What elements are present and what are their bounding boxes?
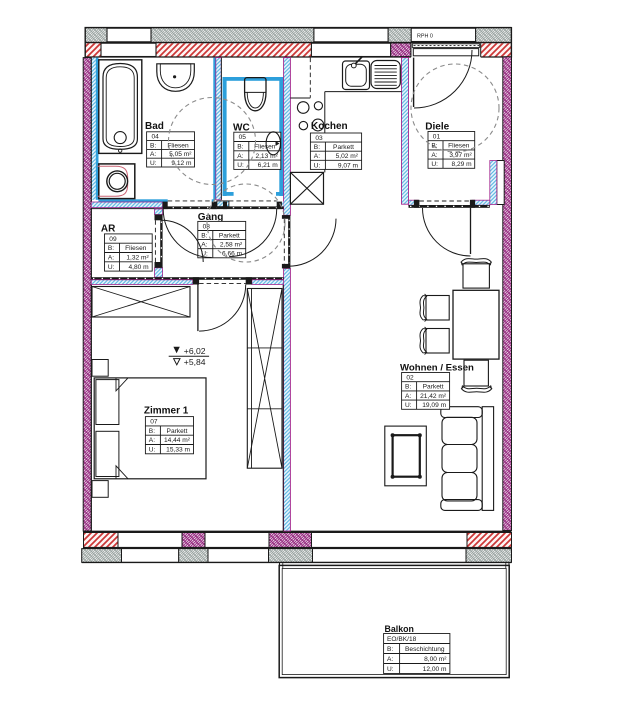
svg-text:A:: A:	[149, 437, 155, 444]
svg-text:04: 04	[152, 134, 160, 141]
svg-text:A:: A:	[405, 393, 411, 400]
svg-text:Fliesen: Fliesen	[448, 143, 470, 150]
svg-text:+6,02: +6,02	[184, 346, 206, 356]
svg-text:2,13 m²: 2,13 m²	[255, 153, 278, 160]
svg-text:EO/BK/18: EO/BK/18	[387, 636, 417, 643]
svg-text:B:: B:	[201, 233, 207, 240]
svg-text:8,29 m: 8,29 m	[452, 161, 473, 168]
svg-text:U:: U:	[387, 666, 394, 673]
svg-text:Beschichtung: Beschichtung	[405, 646, 445, 653]
svg-text:Parkett: Parkett	[423, 384, 444, 391]
svg-text:U:: U:	[314, 162, 321, 169]
svg-text:B:: B:	[387, 646, 393, 653]
svg-text:Balkon: Balkon	[385, 624, 414, 634]
svg-text:Zimmer 1: Zimmer 1	[144, 405, 189, 416]
svg-text:15,33 m: 15,33 m	[166, 447, 190, 454]
svg-text:Parkett: Parkett	[333, 144, 354, 151]
svg-text:08: 08	[203, 223, 211, 230]
svg-text:01: 01	[433, 134, 441, 141]
svg-text:B:: B:	[405, 384, 411, 391]
svg-text:Fliesen: Fliesen	[125, 245, 147, 252]
svg-text:Fliesen: Fliesen	[167, 142, 189, 149]
svg-text:4,80 m: 4,80 m	[129, 264, 150, 271]
svg-text:B:: B:	[108, 245, 114, 252]
svg-text:12,00 m: 12,00 m	[423, 666, 447, 673]
svg-text:2,58 m²: 2,58 m²	[220, 242, 243, 249]
svg-text:U:: U:	[431, 161, 438, 168]
svg-text:A:: A:	[108, 255, 114, 262]
svg-text:B:: B:	[314, 144, 320, 151]
svg-text:9,07 m: 9,07 m	[338, 162, 359, 169]
svg-text:B:: B:	[237, 144, 243, 151]
svg-text:5,02 m²: 5,02 m²	[336, 153, 359, 160]
svg-text:8,00 m²: 8,00 m²	[424, 656, 447, 663]
svg-text:Parkett: Parkett	[219, 233, 240, 240]
svg-text:21,42 m²: 21,42 m²	[420, 393, 447, 400]
svg-text:03: 03	[315, 135, 323, 142]
svg-text:+5,84: +5,84	[184, 357, 206, 367]
svg-text:U:: U:	[150, 160, 157, 167]
svg-text:Bad: Bad	[145, 121, 164, 132]
svg-text:A:: A:	[431, 152, 437, 159]
svg-text:Fliesen: Fliesen	[254, 144, 276, 151]
svg-text:6,21 m: 6,21 m	[258, 162, 279, 169]
svg-text:19,09 m: 19,09 m	[422, 402, 446, 409]
svg-text:5,05 m²: 5,05 m²	[169, 151, 192, 158]
svg-text:Kochen: Kochen	[311, 121, 348, 132]
svg-text:B:: B:	[149, 428, 155, 435]
svg-text:RPH 0: RPH 0	[417, 34, 433, 40]
svg-text:1,32 m²: 1,32 m²	[126, 255, 149, 262]
svg-text:A:: A:	[314, 153, 320, 160]
svg-text:U:: U:	[237, 162, 244, 169]
svg-text:B:: B:	[150, 142, 156, 149]
svg-text:Parkett: Parkett	[167, 428, 188, 435]
svg-text:A:: A:	[237, 153, 243, 160]
svg-text:09: 09	[109, 236, 117, 243]
svg-text:U:: U:	[149, 447, 156, 454]
svg-text:A:: A:	[150, 151, 156, 158]
svg-text:02: 02	[406, 375, 414, 382]
svg-text:A:: A:	[201, 242, 207, 249]
svg-text:AR: AR	[101, 224, 116, 235]
svg-text:3,97 m²: 3,97 m²	[449, 152, 472, 159]
svg-text:07: 07	[150, 419, 158, 426]
svg-text:U:: U:	[108, 264, 115, 271]
svg-text:05: 05	[239, 134, 247, 141]
svg-text:U:: U:	[405, 402, 412, 409]
svg-text:B:: B:	[431, 143, 437, 150]
svg-text:14,44 m²: 14,44 m²	[164, 437, 191, 444]
svg-text:A:: A:	[387, 656, 393, 663]
